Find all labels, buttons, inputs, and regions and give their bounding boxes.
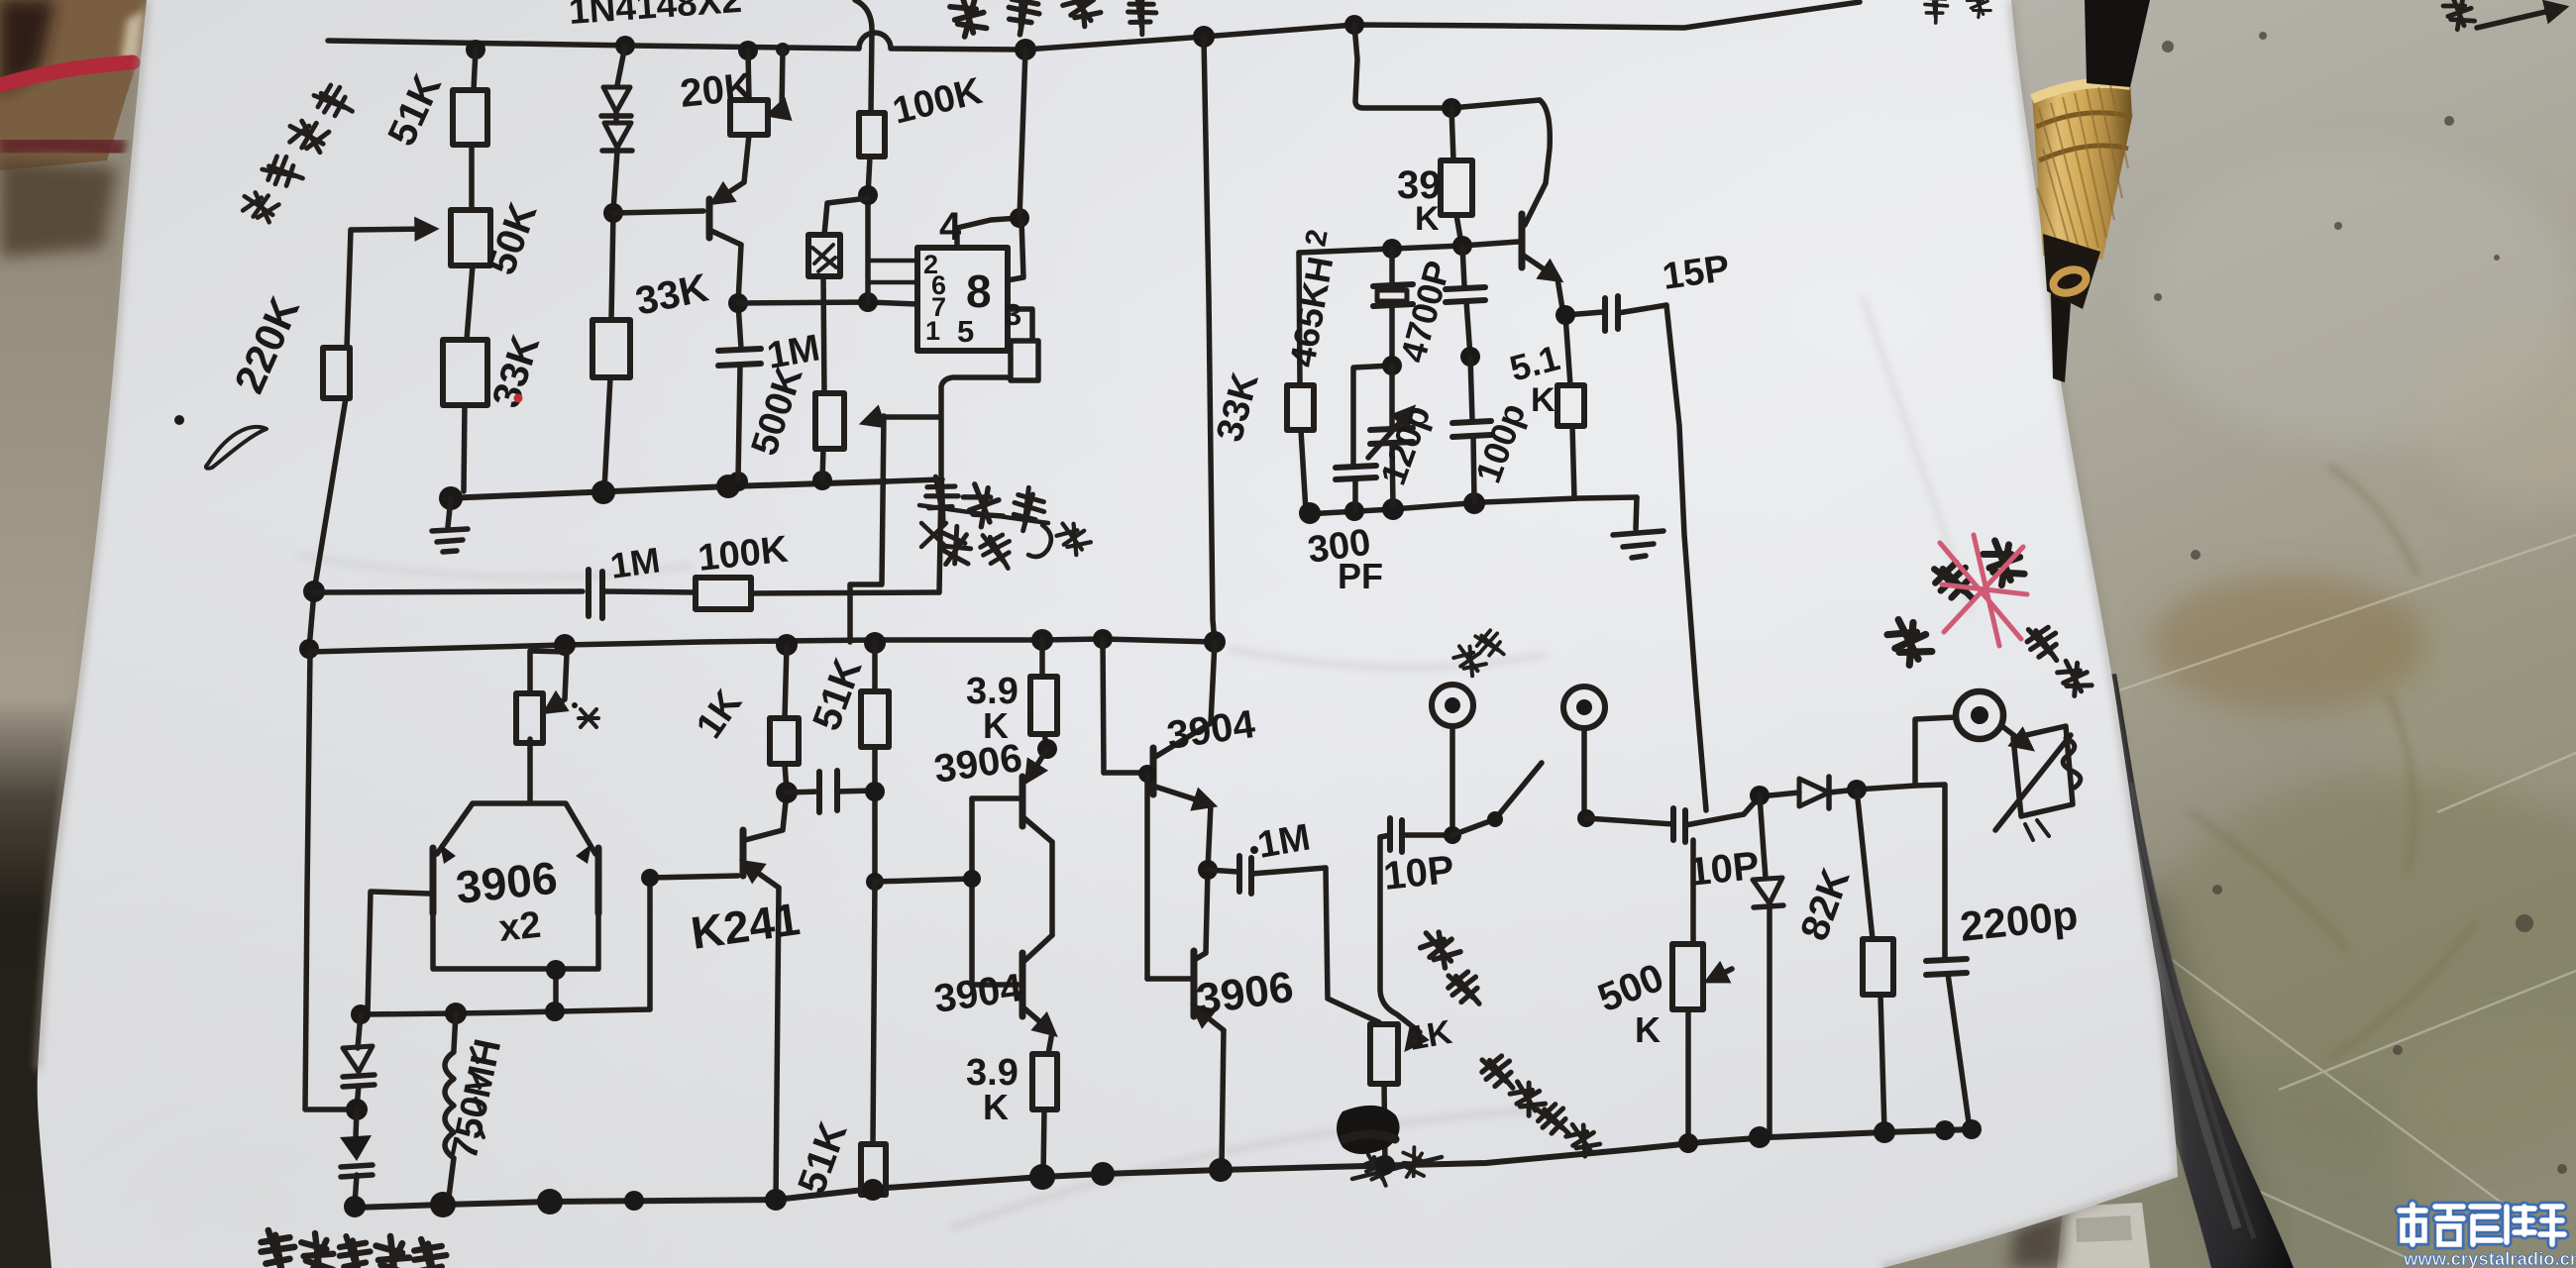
svg-text:1: 1 bbox=[925, 316, 940, 346]
svg-text:10P: 10P bbox=[1381, 848, 1455, 898]
svg-text:K: K bbox=[1415, 200, 1440, 238]
svg-text:K: K bbox=[1531, 381, 1556, 419]
svg-text:4: 4 bbox=[939, 205, 962, 249]
svg-text:3: 3 bbox=[1005, 297, 1021, 332]
svg-text:10P: 10P bbox=[1686, 844, 1761, 895]
svg-text:K: K bbox=[983, 1087, 1009, 1127]
svg-text:3906: 3906 bbox=[454, 852, 560, 913]
svg-text:1K: 1K bbox=[1406, 1013, 1455, 1058]
svg-text:www.crystalradio.cn: www.crystalradio.cn bbox=[2403, 1248, 2576, 1268]
svg-text:8: 8 bbox=[966, 265, 992, 317]
svg-text:K: K bbox=[1635, 1009, 1661, 1050]
svg-text:1M: 1M bbox=[607, 539, 662, 586]
svg-text:20K: 20K bbox=[678, 65, 755, 116]
svg-text:x2: x2 bbox=[497, 904, 543, 950]
svg-text:PF: PF bbox=[1338, 556, 1383, 596]
svg-text:5: 5 bbox=[957, 314, 974, 349]
